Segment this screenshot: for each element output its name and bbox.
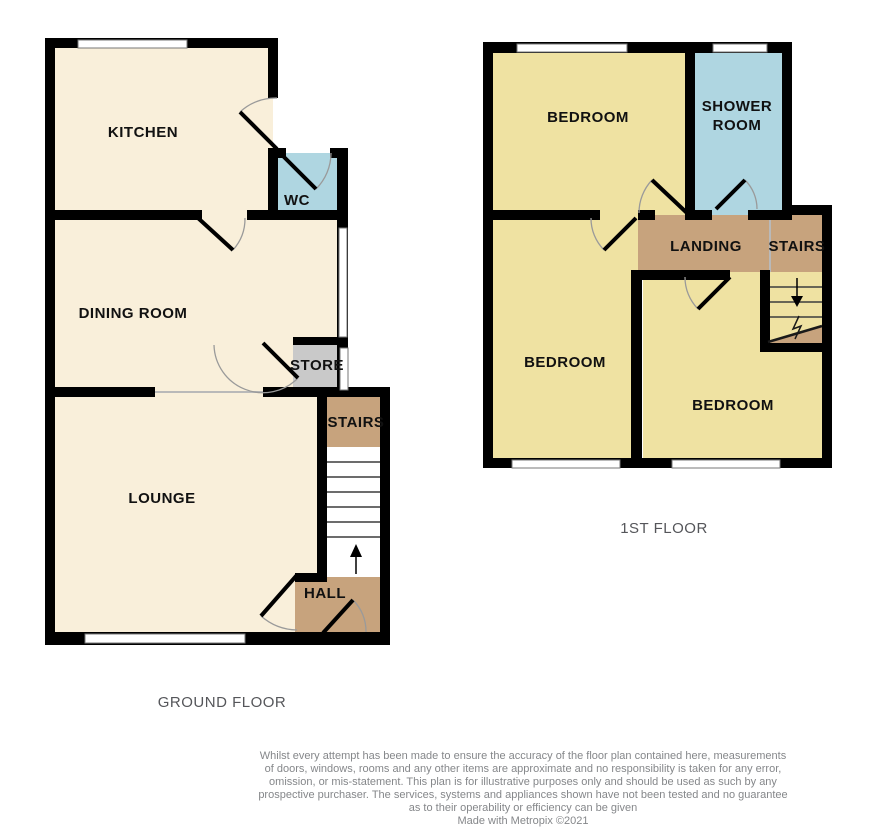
bedroom-right-label: BEDROOM [692, 397, 774, 414]
disclaimer-line: Whilst every attempt has been made to en… [160, 750, 886, 763]
disclaimer-line: of doors, windows, rooms and any other i… [160, 763, 886, 776]
kitchen-label: KITCHEN [108, 124, 178, 141]
first-stairs-label: STAIRS [769, 238, 826, 255]
floor-plan-drawing: KITCHEN WC DINING ROOM STORE STAIRS LOUN… [0, 0, 886, 837]
lounge-room [50, 392, 322, 637]
lounge-window [85, 634, 245, 643]
shower-room-window [713, 44, 767, 52]
disclaimer-line: as to their operability or efficiency ca… [160, 802, 886, 815]
floor-plan-page: KITCHEN WC DINING ROOM STORE STAIRS LOUN… [0, 0, 886, 837]
landing-label: LANDING [670, 238, 742, 255]
dining-room-label: DINING ROOM [79, 305, 188, 322]
bedroom-left-room [493, 215, 638, 458]
stairs-treads-area [327, 447, 380, 577]
bedroom-right-window [672, 460, 780, 468]
wc-label: WC [284, 192, 310, 209]
first-floor-title: 1ST FLOOR [620, 520, 708, 537]
disclaimer: Whilst every attempt has been made to en… [160, 750, 886, 828]
ground-stairs-label: STAIRS [328, 414, 385, 431]
bedroom-top-window [517, 44, 627, 52]
dining-room-window [339, 228, 347, 337]
ground-floor-plan: KITCHEN WC DINING ROOM STORE STAIRS LOUN… [45, 38, 390, 711]
bedroom-left-window [512, 460, 620, 468]
hall-label: HALL [304, 585, 346, 602]
kitchen-window [78, 40, 187, 48]
shower-room-label-line1: SHOWER [702, 98, 773, 115]
metropix-credit: Made with Metropix ©2021 [160, 815, 886, 828]
first-floor-plan: BEDROOM SHOWER ROOM LANDING STAIRS BEDRO… [483, 42, 832, 537]
lounge-label: LOUNGE [128, 490, 195, 507]
store-label: STORE [290, 357, 344, 374]
ground-floor-title: GROUND FLOOR [158, 694, 287, 711]
bedroom-top-room [493, 52, 685, 215]
shower-room-label-line2: ROOM [713, 117, 762, 134]
disclaimer-line: omission, or mis-statement. This plan is… [160, 776, 886, 789]
disclaimer-line: prospective purchaser. The services, sys… [160, 789, 886, 802]
bedroom-top-label: BEDROOM [547, 109, 629, 126]
bedroom-left-label: BEDROOM [524, 354, 606, 371]
